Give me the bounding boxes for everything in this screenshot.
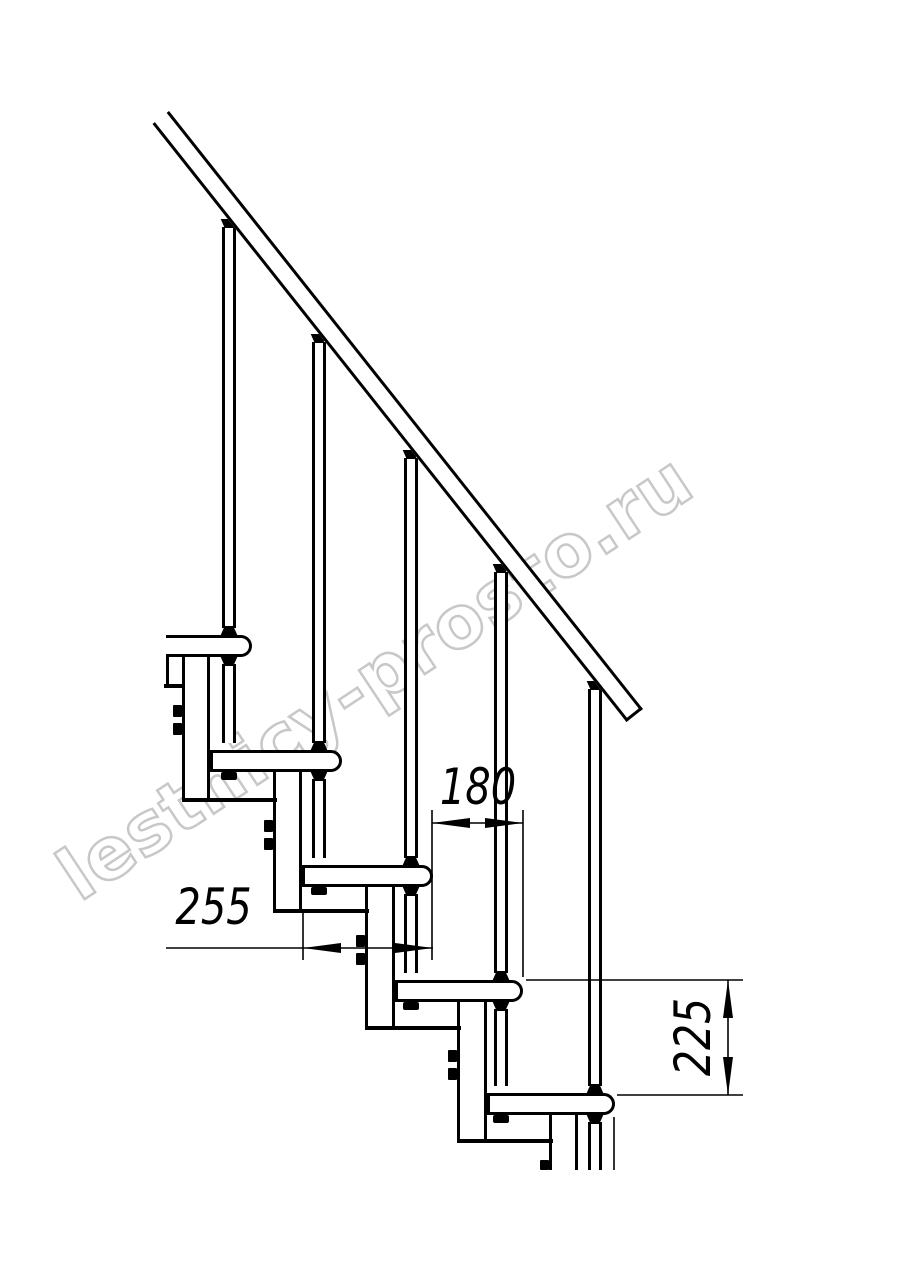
dim-label-255: 255 [175, 882, 242, 932]
dimension-lines [0, 0, 914, 1280]
dim-label-180: 180 [440, 762, 517, 812]
stair-technical-drawing: lestnicy-prosto.ru [0, 0, 914, 1280]
dim-label-225: 225 [668, 992, 712, 1082]
